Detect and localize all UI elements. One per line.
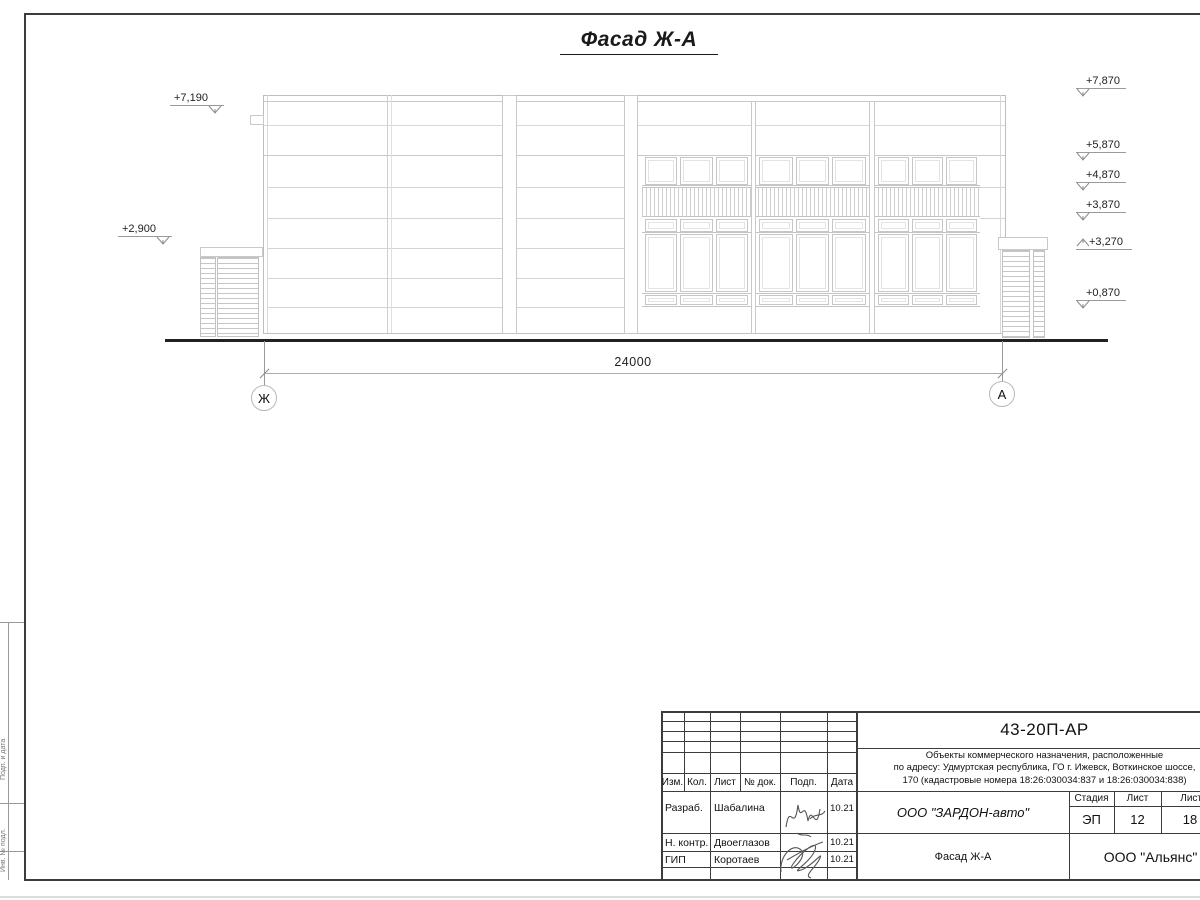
sill-panel — [832, 295, 866, 305]
window-pane — [759, 157, 793, 185]
lists-value: 18 — [1161, 806, 1200, 833]
sill-panel — [946, 295, 977, 305]
elevation-mark: +2,900 — [118, 223, 172, 237]
level-icon — [208, 105, 222, 115]
window-pane — [878, 157, 909, 185]
facade-line — [391, 95, 392, 333]
window-pane — [680, 157, 712, 185]
window-pane — [912, 157, 943, 185]
facade-line — [267, 218, 624, 219]
tb-rule — [661, 731, 857, 732]
ground-line — [165, 339, 1108, 342]
sill-panel — [878, 295, 909, 305]
transom-pane — [716, 219, 748, 232]
list-value: 12 — [1114, 806, 1161, 833]
sill-panel — [645, 295, 677, 305]
window-pane — [716, 157, 748, 185]
louver-panel — [200, 257, 216, 337]
window-pane — [946, 234, 977, 292]
window-pane — [716, 234, 748, 292]
facade-line — [1000, 95, 1001, 333]
facade-line — [642, 306, 980, 307]
level-icon — [1076, 88, 1090, 98]
stage-value: ЭП — [1069, 806, 1114, 833]
louver-cap — [998, 237, 1048, 250]
org-name: ООО "Альянс" — [1069, 833, 1200, 880]
elevation-mark: +3,870 — [1076, 199, 1126, 213]
dimension-line — [264, 373, 1003, 374]
elevation-mark: +5,870 — [1076, 139, 1126, 153]
signature — [777, 832, 829, 880]
transom-pane — [680, 219, 712, 232]
parapet-cap — [250, 115, 264, 125]
window-pane — [680, 234, 712, 292]
extension-line — [1002, 341, 1003, 382]
elevation-value: +7,190 — [170, 92, 224, 106]
elevation-value: +5,870 — [1076, 139, 1126, 153]
tb-name: Шабалина — [714, 800, 778, 816]
elevation-mark: +7,870 — [1076, 75, 1126, 89]
window-pane — [912, 234, 943, 292]
titleblock-border — [661, 711, 663, 881]
axis-bubble-right: А — [989, 381, 1015, 407]
margin-line — [8, 622, 9, 880]
level-icon — [156, 236, 170, 246]
transom-pane — [832, 219, 866, 232]
elevation-mark: +4,870 — [1076, 169, 1126, 183]
facade-line — [980, 187, 1005, 188]
sill-panel — [912, 295, 943, 305]
tb-name: Коротаев — [714, 852, 778, 868]
project-line3: 170 (кадастровые номера 18:26:030034:837… — [857, 773, 1200, 787]
transom-pane — [878, 219, 909, 232]
window-pane — [796, 234, 830, 292]
window-pane — [645, 157, 677, 185]
dimension-value: 24000 — [603, 355, 663, 369]
margin-line — [0, 622, 24, 623]
level-icon — [1076, 212, 1090, 222]
window-pane — [796, 157, 830, 185]
doc-code: 43-20П-АР — [857, 711, 1200, 748]
elevation-mark: +3,270 — [1076, 236, 1132, 250]
elevation-value: +2,900 — [118, 223, 172, 237]
sheet-edge — [0, 896, 1200, 898]
tb-name: Двоеглазов — [714, 835, 778, 851]
transom-pane — [912, 219, 943, 232]
tb-role: ГИП — [665, 852, 715, 868]
transom-pane — [645, 219, 677, 232]
company-name: ООО "ЗАРДОН-авто" — [857, 791, 1069, 833]
sill-panel — [680, 295, 712, 305]
stage-label: Стадия — [1069, 791, 1114, 806]
facade-line — [642, 232, 980, 233]
drawing-sheet: Подп. и дата Инв. № подл. Фасад Ж-А +7,1… — [0, 0, 1200, 900]
tb-rule — [661, 752, 857, 753]
margin-line — [0, 803, 24, 804]
list-label: Лист — [1114, 791, 1161, 806]
tb-rule — [661, 721, 857, 722]
louver-panel — [1033, 250, 1045, 338]
louver-panel — [1002, 250, 1030, 338]
level-icon — [1076, 237, 1090, 247]
transom-pane — [759, 219, 793, 232]
louver-panel — [217, 257, 259, 337]
window-pane — [832, 234, 866, 292]
tb-header-podp: Подп. — [780, 773, 827, 791]
sill-panel — [759, 295, 793, 305]
level-icon — [1076, 152, 1090, 162]
elevation-value: +7,870 — [1076, 75, 1126, 89]
louver-cap — [200, 247, 263, 257]
glazing-pier — [869, 101, 875, 334]
extension-line — [264, 341, 265, 385]
elevation-value: +0,870 — [1076, 287, 1126, 301]
window-pane — [759, 234, 793, 292]
facade-line — [267, 248, 624, 249]
margin-label: Инв. № подл. — [0, 828, 7, 872]
sill-panel — [716, 295, 748, 305]
facade-line — [267, 278, 624, 279]
tb-date: 10.21 — [828, 851, 856, 867]
tb-header-list: Лист — [710, 773, 740, 791]
facade-elevation-drawing — [0, 0, 1200, 500]
axis-bubble-left: Ж — [251, 385, 277, 411]
tb-rule — [661, 741, 857, 742]
facade-line — [263, 95, 264, 333]
tb-date: 10.21 — [828, 800, 856, 816]
tb-header-kol: Кол. — [684, 773, 710, 791]
elevation-mark: +7,190 — [170, 92, 224, 106]
tb-header-data: Дата — [827, 773, 857, 791]
tb-role: Н. контр. — [665, 835, 715, 851]
facade-line — [267, 187, 624, 188]
facade-line — [642, 185, 980, 186]
window-pane — [946, 157, 977, 185]
elevation-value: +4,870 — [1076, 169, 1126, 183]
pilaster — [624, 95, 638, 334]
facade-line — [267, 95, 268, 333]
sill-panel — [796, 295, 830, 305]
window-pane — [832, 157, 866, 185]
window-pane — [878, 234, 909, 292]
glazing-pier — [751, 101, 756, 334]
window-pane — [645, 234, 677, 292]
tb-role: Разраб. — [665, 800, 709, 816]
hatch-band — [642, 187, 980, 217]
tb-date: 10.21 — [828, 834, 856, 850]
facade-line — [642, 293, 980, 294]
transom-pane — [946, 219, 977, 232]
facade-line — [267, 307, 624, 308]
tb-header-izm: Изм. — [661, 773, 684, 791]
pilaster — [502, 95, 517, 334]
elevation-mark: +0,870 — [1076, 287, 1126, 301]
facade-line — [980, 218, 1005, 219]
lists-label: Листов — [1161, 791, 1200, 806]
tb-header-doc: № док. — [740, 773, 780, 791]
facade-line — [387, 95, 388, 333]
elevation-value: +3,870 — [1076, 199, 1126, 213]
level-icon — [1076, 300, 1090, 310]
level-icon — [1076, 182, 1090, 192]
margin-label: Подп. и дата — [0, 739, 7, 780]
sheet-name: Фасад Ж-А — [857, 833, 1069, 880]
transom-pane — [796, 219, 830, 232]
